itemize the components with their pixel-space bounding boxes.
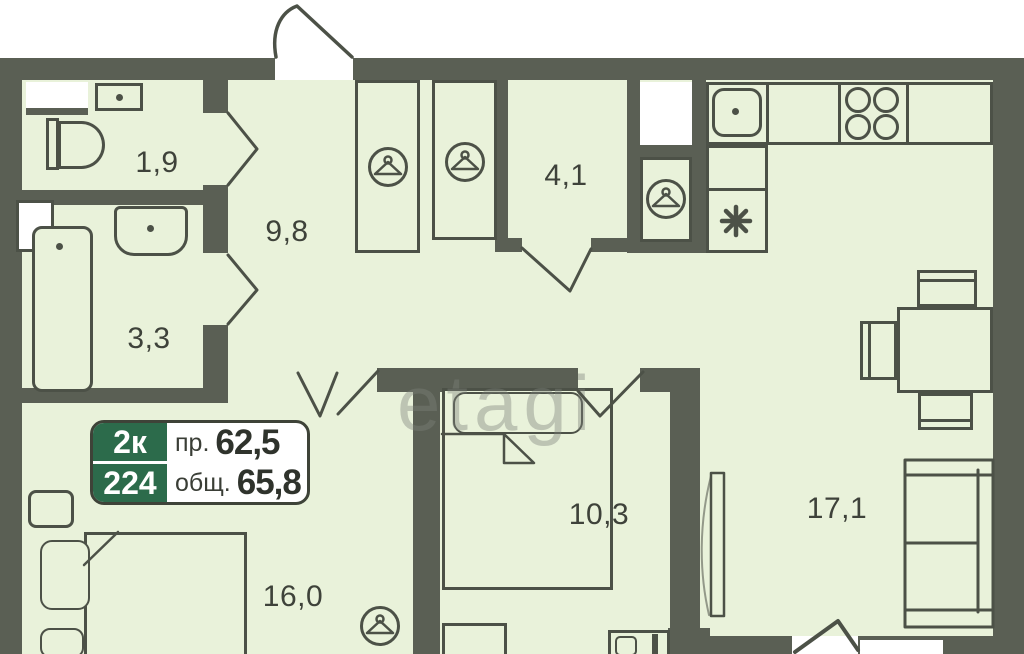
wardrobe-cabinet	[355, 80, 420, 253]
badge-living-value: 62,5	[215, 423, 279, 463]
chair-back	[920, 419, 971, 422]
watermark: etagi	[397, 358, 596, 449]
double-bed	[84, 532, 247, 654]
chair	[918, 393, 973, 430]
washing-machine-panel	[652, 634, 658, 654]
counter-divider	[766, 84, 769, 143]
badge-areas-column: пр. 62,5 общ. 65,8	[167, 423, 307, 502]
wall-top-left	[0, 58, 275, 80]
wall-top-right	[353, 58, 1024, 80]
wall-bottom	[668, 628, 710, 654]
wall-shaft-bottom	[640, 145, 692, 157]
wall-left	[0, 58, 22, 654]
pillow	[40, 540, 90, 610]
desk	[442, 623, 507, 654]
room-area-label-wardrobe: 4,1	[544, 159, 587, 193]
wall-closet-east	[627, 58, 640, 252]
nightstand	[28, 490, 74, 528]
floor-plan: etagi	[0, 0, 1024, 654]
chair-back	[868, 323, 871, 378]
wc-niche	[26, 82, 88, 108]
stove-burner	[873, 87, 899, 113]
stove-burner	[845, 114, 871, 140]
room-area-label-living: 17,1	[807, 492, 867, 526]
sink-drain-dot	[116, 94, 123, 101]
stove-burner	[873, 114, 899, 140]
toilet-bowl	[58, 121, 105, 169]
badge-unit-number: 224	[93, 464, 167, 502]
cabinet-divider	[708, 188, 766, 191]
badge-total-value: 65,8	[237, 463, 301, 503]
badge-green-column: 2к 224	[93, 423, 167, 502]
entrance-door-leaf	[275, 6, 352, 57]
drain-dot	[56, 243, 63, 250]
wall-bottom	[710, 636, 792, 654]
badge-total-row: общ. 65,8	[167, 463, 307, 503]
room-area-label-wc: 1,9	[135, 146, 178, 180]
dining-table	[897, 307, 993, 393]
wall-kitchen-west	[692, 58, 706, 253]
wardrobe-cabinet	[640, 157, 692, 242]
washing-machine-door	[615, 636, 637, 654]
sink-drain-dot	[147, 225, 154, 232]
wall-corridor-south	[591, 238, 640, 252]
room-area-label-hallway: 9,8	[265, 215, 308, 249]
counter-divider	[906, 84, 909, 143]
chair-back	[919, 279, 975, 282]
wall-window-sill	[26, 108, 88, 115]
wardrobe-cabinet	[432, 80, 497, 240]
wall-living-divider	[670, 368, 700, 637]
chair	[860, 321, 897, 380]
badge-living-row: пр. 62,5	[167, 423, 307, 463]
room-area-label-bathroom: 3,3	[127, 322, 170, 356]
pillow	[40, 628, 84, 654]
room-area-label-bedroom-large: 16,0	[263, 580, 323, 614]
kitchen-column	[706, 145, 768, 253]
badge-living-label: пр.	[175, 429, 209, 458]
badge-rooms: 2к	[93, 423, 167, 461]
wall-wc-east	[203, 80, 228, 113]
shower-tray	[32, 226, 93, 392]
sink-drain-dot	[732, 108, 739, 115]
badge-total-label: общ.	[175, 469, 231, 498]
listing-badge: 2к 224 пр. 62,5 общ. 65,8	[90, 420, 310, 505]
wall-wc-east	[203, 185, 228, 253]
wall-right	[993, 58, 1024, 654]
chair	[917, 270, 977, 307]
window	[860, 640, 943, 654]
stove-burner	[845, 87, 871, 113]
room-area-label-bedroom-small: 10,3	[569, 498, 629, 532]
duct-shaft	[640, 82, 692, 145]
wall-corridor-south	[495, 238, 522, 252]
counter-divider	[838, 84, 841, 143]
